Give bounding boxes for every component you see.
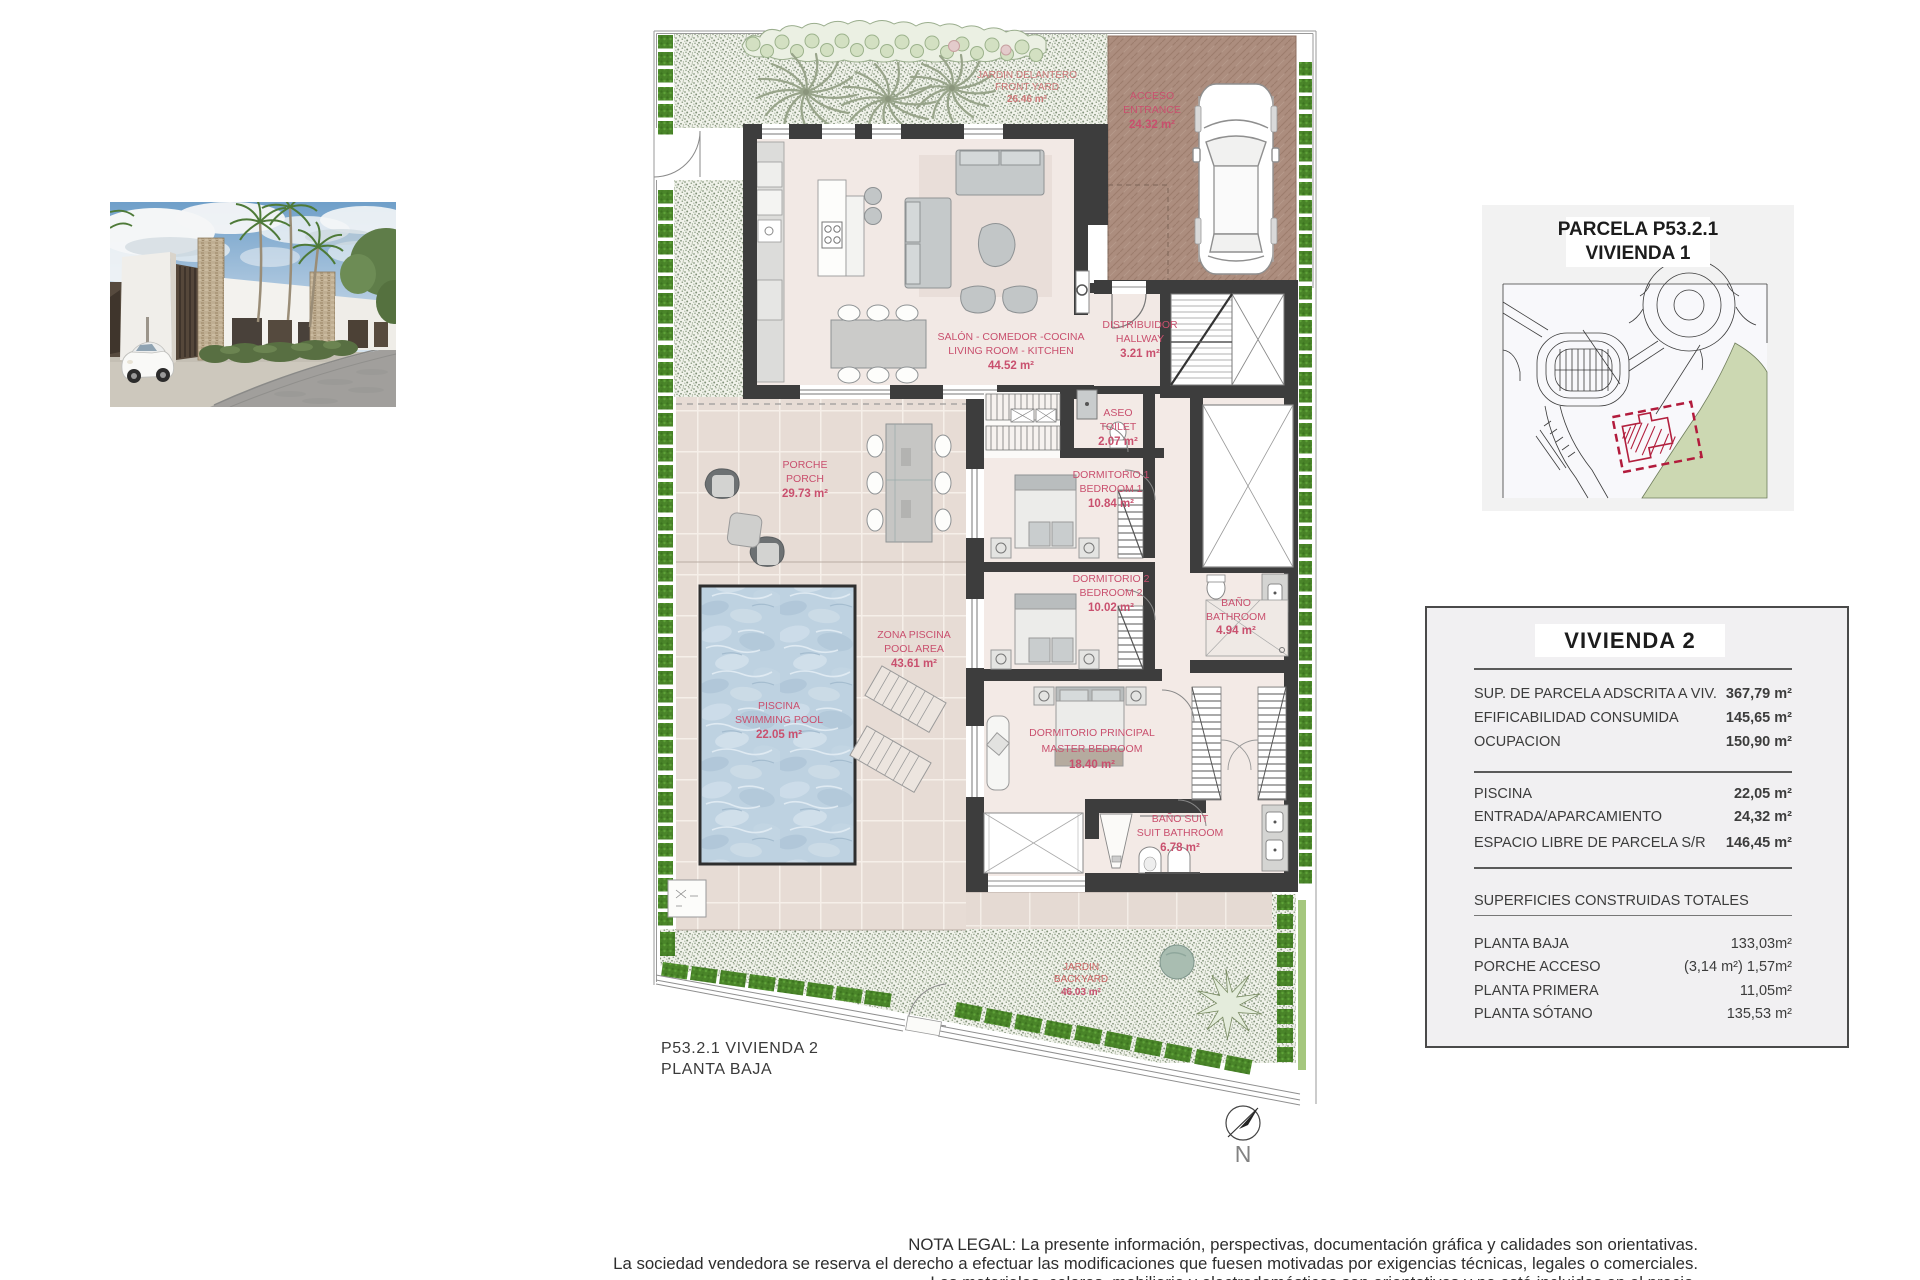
svg-text:MASTER BEDROOM: MASTER BEDROOM xyxy=(1042,743,1143,755)
svg-text:JARDIN: JARDIN xyxy=(1063,962,1099,973)
svg-text:BATHROOM: BATHROOM xyxy=(1206,611,1266,623)
svg-text:SWIMMING POOL: SWIMMING POOL xyxy=(735,714,823,726)
svg-text:TOILET: TOILET xyxy=(1100,421,1137,433)
svg-text:DORMITORIO 1: DORMITORIO 1 xyxy=(1073,469,1150,481)
svg-text:JARDIN DELANTERO: JARDIN DELANTERO xyxy=(977,70,1077,81)
svg-text:HALLWAY: HALLWAY xyxy=(1116,333,1164,345)
svg-text:DORMITORIO PRINCIPAL: DORMITORIO PRINCIPAL xyxy=(1029,727,1155,739)
svg-text:POOL AREA: POOL AREA xyxy=(884,643,944,655)
svg-text:LIVING ROOM - KITCHEN: LIVING ROOM - KITCHEN xyxy=(948,345,1073,357)
svg-text:SUIT BATHROOM: SUIT BATHROOM xyxy=(1137,827,1224,839)
svg-text:22.05 m²: 22.05 m² xyxy=(756,729,802,741)
svg-text:PISCINA: PISCINA xyxy=(758,700,800,712)
svg-text:ZONA PISCINA: ZONA PISCINA xyxy=(877,629,951,641)
svg-text:N: N xyxy=(1235,1141,1252,1167)
svg-text:PORCH: PORCH xyxy=(786,473,824,485)
svg-text:BACKYARD: BACKYARD xyxy=(1054,974,1108,985)
svg-text:10.02 m²: 10.02 m² xyxy=(1088,602,1134,614)
svg-text:BEDROOM 2: BEDROOM 2 xyxy=(1079,587,1142,599)
svg-text:DORMITORIO 2: DORMITORIO 2 xyxy=(1073,573,1150,585)
svg-text:BAÑO SUIT: BAÑO SUIT xyxy=(1152,812,1209,825)
svg-text:29.73 m²: 29.73 m² xyxy=(782,488,828,500)
svg-text:6.78 m²: 6.78 m² xyxy=(1160,842,1200,854)
svg-text:FRONT YARD: FRONT YARD xyxy=(995,82,1059,93)
svg-text:ACCESO: ACCESO xyxy=(1130,90,1174,102)
svg-text:4.94 m²: 4.94 m² xyxy=(1216,625,1256,637)
svg-text:BEDROOM 1: BEDROOM 1 xyxy=(1079,483,1142,495)
svg-text:10.84 m²: 10.84 m² xyxy=(1088,498,1134,510)
svg-text:43.61 m²: 43.61 m² xyxy=(891,658,937,670)
svg-text:DISTRIBUIDOR: DISTRIBUIDOR xyxy=(1102,319,1178,331)
svg-text:26.46 m²: 26.46 m² xyxy=(1007,94,1048,105)
svg-text:24.32 m²: 24.32 m² xyxy=(1129,119,1175,131)
svg-text:ENTRANCE: ENTRANCE xyxy=(1123,104,1181,116)
svg-text:ASEO: ASEO xyxy=(1103,407,1132,419)
svg-text:3.21 m²: 3.21 m² xyxy=(1120,348,1160,360)
svg-text:46.03 m²: 46.03 m² xyxy=(1061,987,1102,998)
svg-text:18.40 m²: 18.40 m² xyxy=(1069,759,1115,771)
svg-text:SALÓN - COMEDOR -COCINA: SALÓN - COMEDOR -COCINA xyxy=(937,330,1084,343)
svg-text:BAÑO: BAÑO xyxy=(1221,596,1251,609)
svg-text:PORCHE: PORCHE xyxy=(783,459,828,471)
svg-text:2.07 m²: 2.07 m² xyxy=(1098,436,1138,448)
svg-text:44.52 m²: 44.52 m² xyxy=(988,360,1034,372)
